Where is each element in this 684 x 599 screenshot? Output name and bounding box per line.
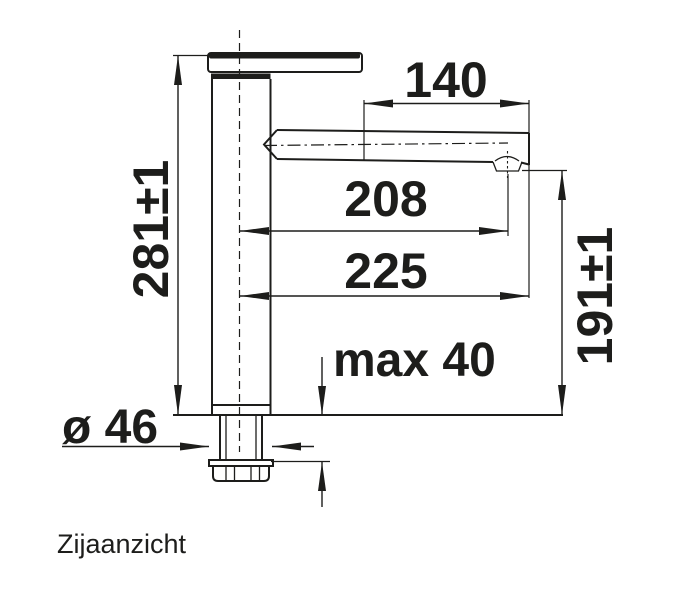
- nut-facets: [226, 466, 260, 481]
- dim-140-arrow-right: [500, 100, 529, 108]
- body-column: [212, 79, 271, 415]
- spout-bottom-edge: [277, 159, 493, 162]
- dim-281-label: 281±1: [123, 160, 179, 299]
- dimension-diameter46: ø 46: [62, 401, 314, 454]
- spout-top-edge: [277, 130, 529, 133]
- dim-46-label: ø 46: [62, 401, 158, 454]
- aerator: [493, 151, 522, 178]
- dimension-max40: max 40: [271, 334, 496, 507]
- mounting-shank: [220, 416, 262, 460]
- dim-max40-label: max 40: [333, 334, 496, 387]
- fixing-hardware: [209, 460, 273, 481]
- technical-drawing-page: 140 208 225 281±1: [0, 0, 684, 599]
- dim-281-arrow-bottom: [174, 385, 182, 415]
- dim-46-arrow-right: [272, 443, 301, 451]
- lever-handle: [208, 53, 362, 72]
- dim-281-arrow-top: [174, 56, 182, 86]
- dim-191-arrow-top: [558, 171, 566, 200]
- dimension-191: 191±1: [522, 171, 623, 416]
- dim-225-label: 225: [344, 243, 427, 299]
- lever-handle-top-edge: [209, 53, 360, 59]
- dim-191-label: 191±1: [567, 227, 623, 366]
- dim-225-arrow-left: [240, 292, 269, 300]
- spout-axis-centerline: [264, 143, 508, 146]
- dimension-225: 225: [240, 243, 529, 300]
- dim-208-label: 208: [344, 171, 427, 227]
- dim-46-arrow-left: [180, 443, 209, 451]
- dim-140-arrow-left: [364, 100, 393, 108]
- spout: [264, 100, 529, 165]
- dim-208-arrow-left: [240, 227, 269, 235]
- dimension-281: 281±1: [123, 55, 208, 415]
- cartridge-cap-band: [211, 74, 271, 80]
- faucet-side-view-drawing: 140 208 225 281±1: [0, 0, 684, 599]
- dim-max40-arrow-down: [318, 386, 326, 415]
- dim-208-arrow-right: [479, 227, 508, 235]
- dim-max40-arrow-up: [318, 462, 326, 491]
- dim-191-arrow-bottom: [558, 385, 566, 415]
- mounting-nut: [213, 466, 269, 481]
- dimension-208: 208: [240, 171, 508, 236]
- view-caption: Zijaanzicht: [57, 529, 187, 559]
- dim-140-label: 140: [404, 52, 487, 108]
- dim-225-arrow-right: [500, 292, 529, 300]
